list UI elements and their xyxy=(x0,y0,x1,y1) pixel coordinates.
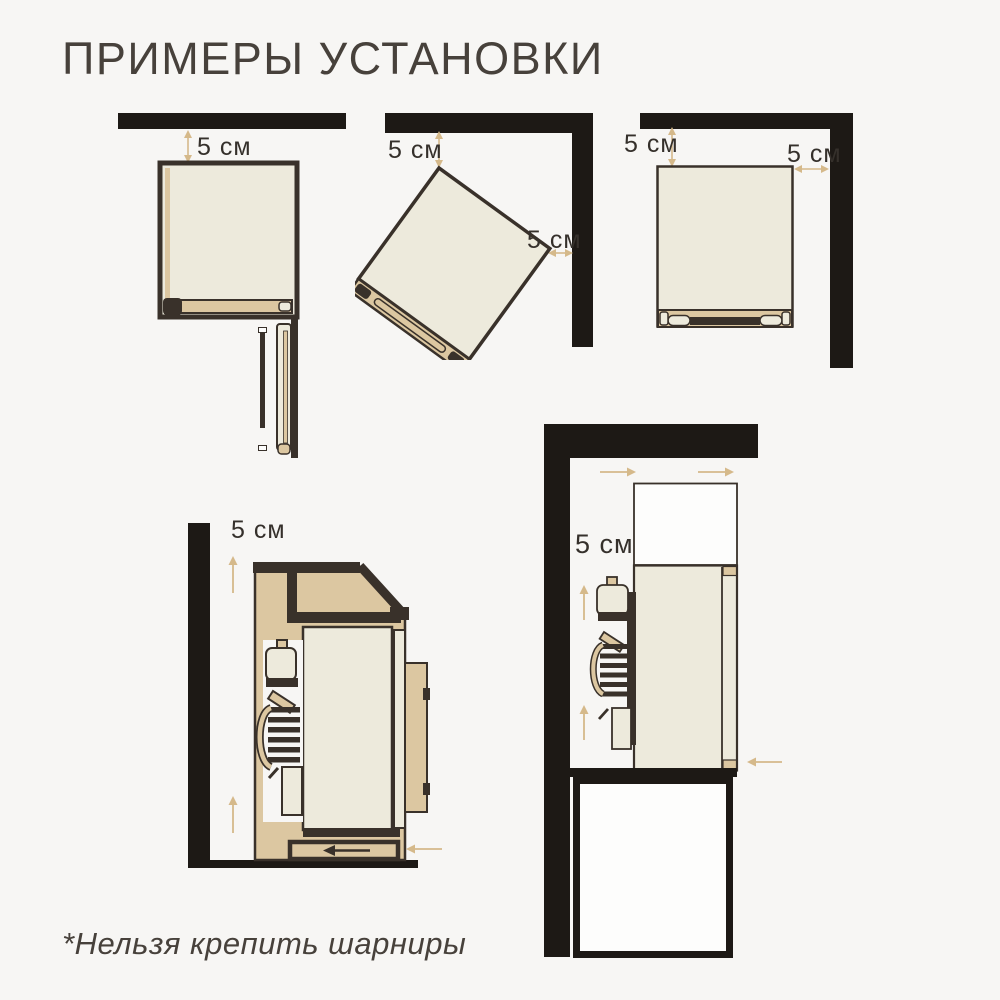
airflow-arrow-right xyxy=(600,468,636,477)
wall-top xyxy=(118,113,346,129)
wall-top xyxy=(544,424,758,458)
wall-top xyxy=(640,113,853,129)
airflow-arrow-up xyxy=(229,556,238,593)
vent-box xyxy=(634,484,737,566)
diagram-bottom-right xyxy=(540,420,795,965)
heat-exchanger-fins xyxy=(600,644,630,697)
device-side-view xyxy=(253,562,430,860)
device-side-view xyxy=(593,566,737,771)
door-edge xyxy=(260,330,265,428)
airflow-arrow-left xyxy=(747,758,782,767)
device-top-view xyxy=(160,163,297,317)
airflow-arrow-up xyxy=(580,705,589,740)
dim-label-d5: 5 см xyxy=(575,529,634,560)
airflow-arrow-up xyxy=(229,796,238,833)
dim-label-d3-left: 5 см xyxy=(624,130,679,159)
wall-left xyxy=(188,523,210,868)
niche-box xyxy=(577,781,730,955)
dim-label-d2-right: 5 см xyxy=(527,226,582,255)
wall-top xyxy=(385,113,573,133)
dimension-arrow-vertical xyxy=(184,130,192,163)
airflow-arrow-right xyxy=(698,468,734,477)
dim-label-d1-top: 5 см xyxy=(197,133,252,162)
page-title: ПРИМЕРЫ УСТАНОВКИ xyxy=(62,33,604,85)
airflow-arrow-left xyxy=(406,845,442,854)
footnote: *Нельзя крепить шарниры xyxy=(62,926,466,962)
device-top-view xyxy=(658,167,793,328)
device-side-view xyxy=(259,324,292,454)
airflow-arrow-up xyxy=(580,585,589,620)
wall-left xyxy=(544,424,570,957)
dim-label-d4: 5 см xyxy=(231,516,286,545)
diagram-bottom-left xyxy=(180,515,450,875)
dim-label-d3-right: 5 см xyxy=(787,140,842,169)
dim-label-d2-top: 5 см xyxy=(388,136,443,165)
wall-strip-below xyxy=(291,317,298,458)
installation-examples-poster: ПРИМЕРЫ УСТАНОВКИ 5 см xyxy=(0,0,1000,1000)
device-top-view-tilted xyxy=(355,168,550,360)
door-handle-bar xyxy=(690,317,760,325)
hinge-block xyxy=(163,298,182,315)
mounting-bracket xyxy=(266,648,296,680)
shelf-bar xyxy=(570,768,737,777)
tank xyxy=(303,627,392,830)
mounting-bracket xyxy=(597,585,628,615)
